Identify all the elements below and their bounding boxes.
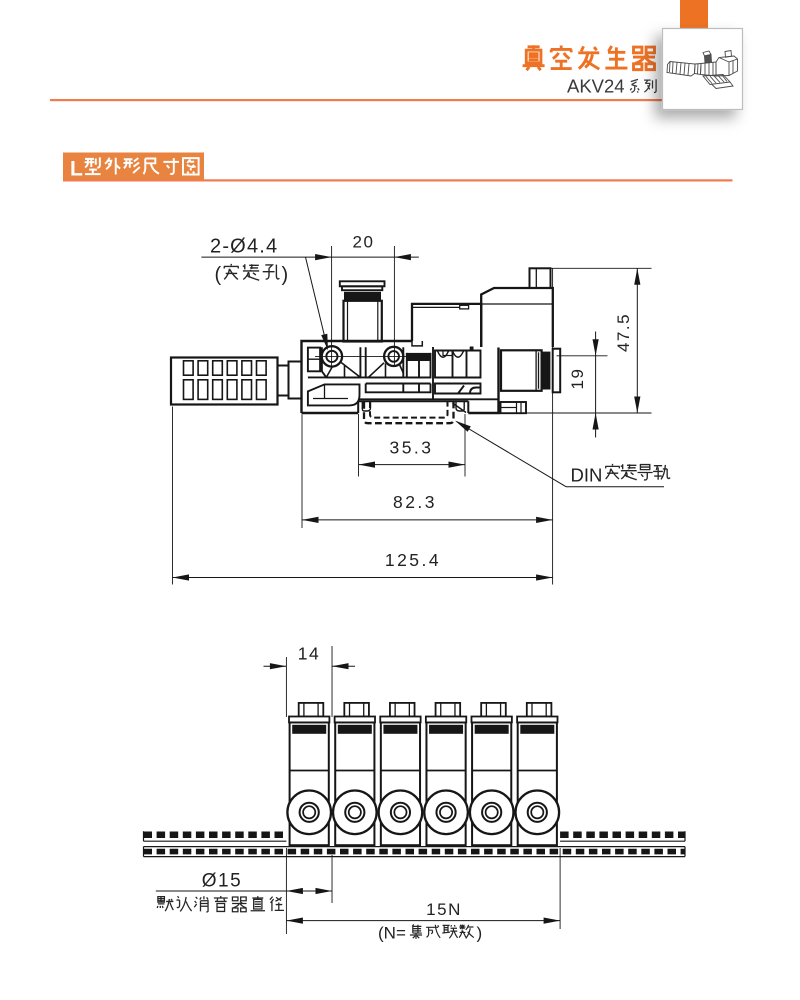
svg-text:DIN: DIN [571, 465, 603, 486]
svg-text:20: 20 [353, 233, 375, 252]
svg-text:Ø15: Ø15 [202, 871, 242, 892]
svg-text:AKV24: AKV24 [567, 75, 625, 96]
svg-text:(N=: (N= [378, 924, 406, 943]
svg-text:15N: 15N [426, 900, 462, 919]
svg-text:): ) [477, 924, 483, 943]
svg-text:): ) [282, 264, 289, 286]
svg-text:35.3: 35.3 [389, 438, 433, 458]
svg-text:125.4: 125.4 [385, 550, 441, 570]
svg-text:82.3: 82.3 [393, 492, 437, 512]
svg-text:L: L [70, 158, 83, 181]
svg-text:14: 14 [298, 644, 320, 664]
svg-text:47.5: 47.5 [614, 313, 633, 352]
svg-text:2-Ø4.4: 2-Ø4.4 [210, 236, 278, 258]
svg-text:(: ( [215, 264, 222, 286]
svg-text:19: 19 [568, 368, 587, 390]
